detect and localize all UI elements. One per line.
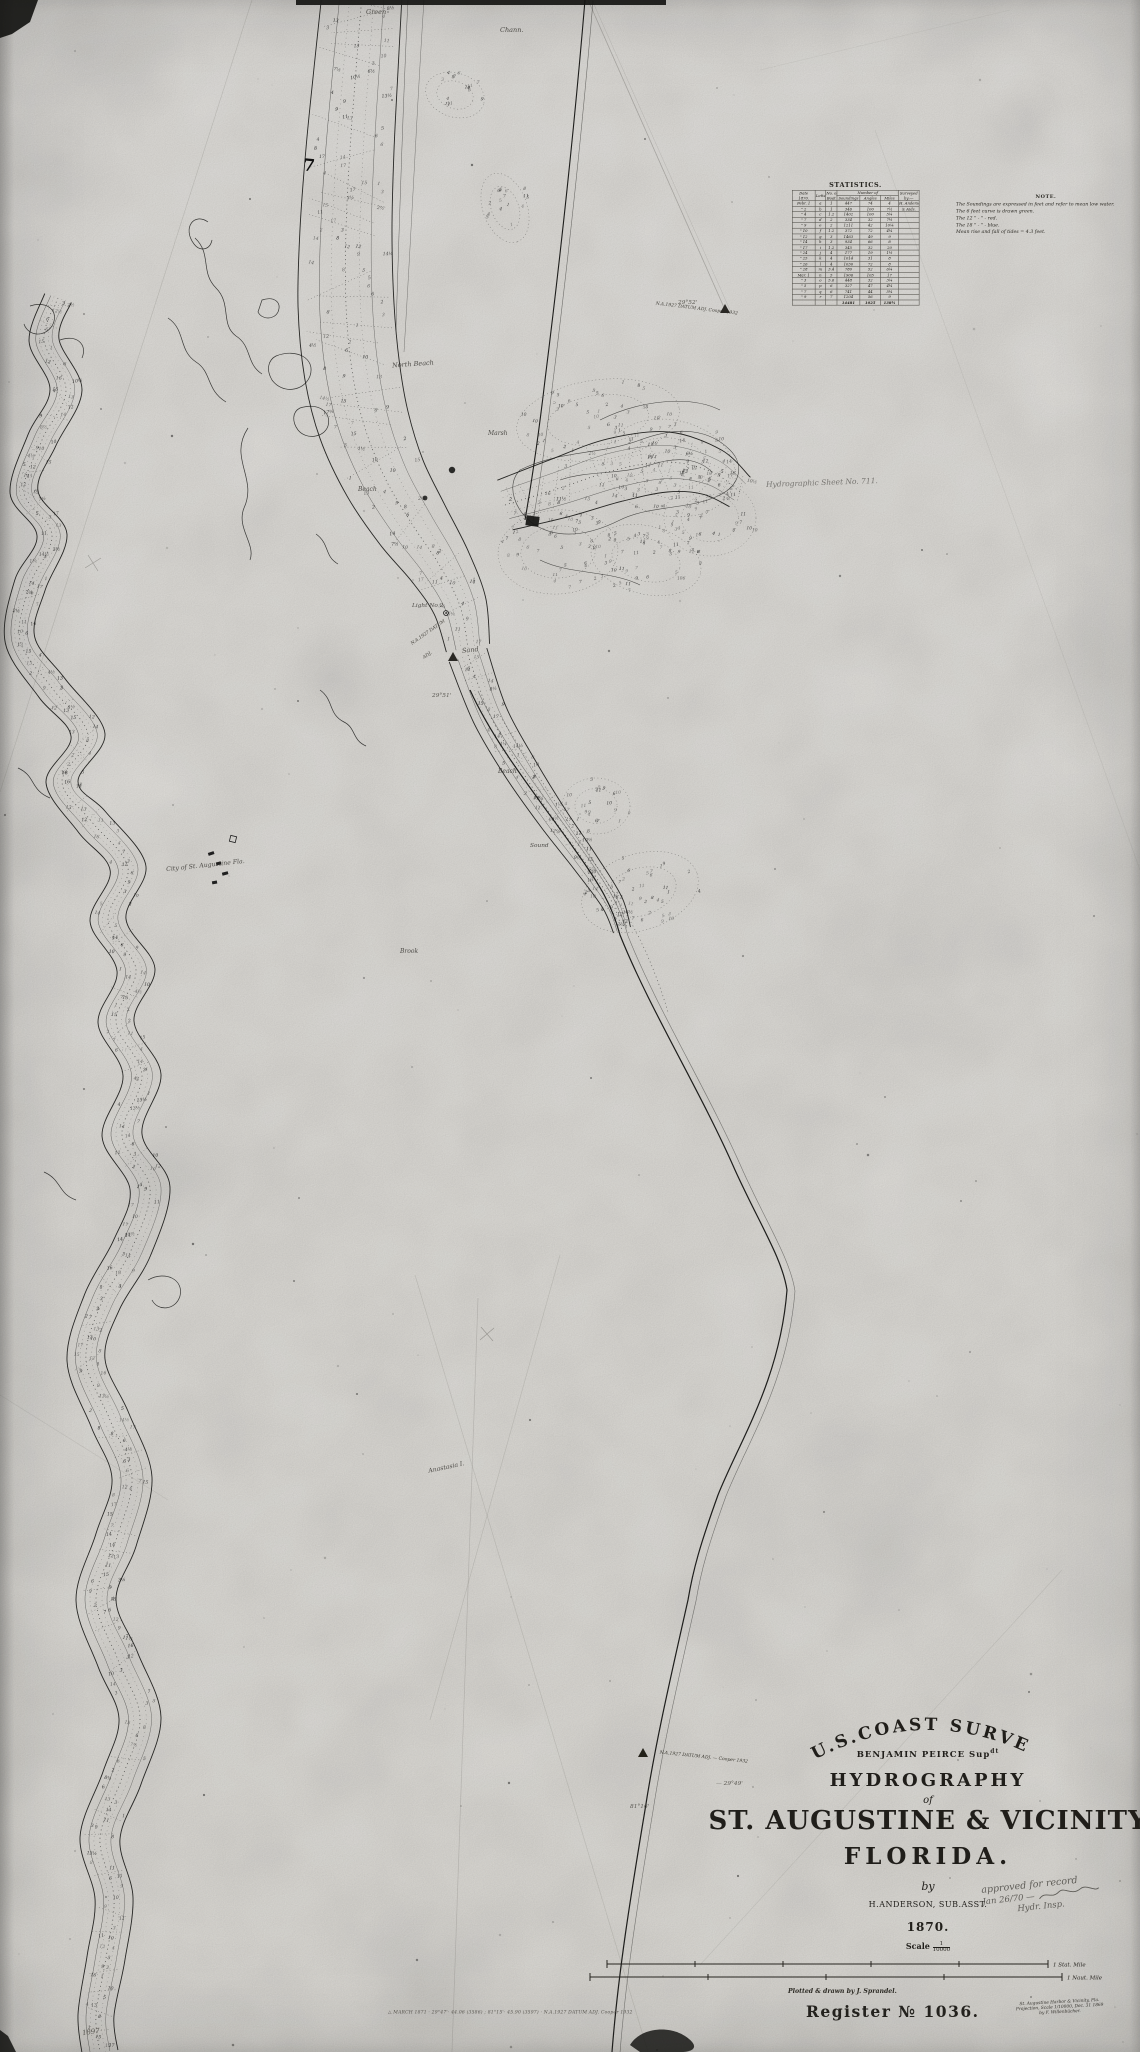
title-scale: Scale 110000: [660, 1941, 1140, 1953]
nautical-mile-label: 1 Naut. Mile: [1067, 1976, 1103, 1982]
datum-mid-label2: ADJ.: [422, 656, 442, 664]
col-letter: Letter: [815, 190, 825, 200]
title-superintendent: BENJAMIN PEIRCE Supdt: [660, 1748, 1140, 1760]
note-line: Mean rise and fall of tides = 4.3 feet.: [956, 229, 1136, 236]
title-of: of: [660, 1795, 1140, 1806]
map-label: Beach: [358, 486, 377, 493]
plotted-credit: Plotted & drawn by J. Sprandel.: [788, 1988, 897, 1995]
map-label: Light No 2: [412, 603, 443, 609]
ink-mark-7: 7: [302, 155, 316, 176]
title-staugustine: ST. AUGUSTINE & VICINITY: [660, 1806, 1140, 1836]
datum-title-triangle-icon: [638, 1748, 648, 1757]
title-year: 1870.: [660, 1920, 1140, 1934]
col-soundings: Soundings: [837, 195, 860, 200]
map-label: Chann.: [500, 26, 523, 34]
register-number: Register № 1036.: [806, 2002, 980, 2021]
map-label: Green: [366, 8, 386, 16]
pencil-bottom-note: △ MARCH 1871 · 29°47'· 44.06 (3586) ; 81…: [388, 2010, 728, 2022]
note-block: NOTE. The Soundings are expressed in fee…: [956, 194, 1136, 246]
datum-mid-lat: 29°51': [432, 682, 451, 701]
note-title: NOTE.: [956, 194, 1136, 200]
datum-top-label: N.A.1927 DATUM ADJ. Cooper 1932: [656, 301, 821, 309]
note-line: The 12 " - " - red.: [956, 215, 1136, 222]
statistics-table: Date 1870. Letter No. of Boat Number of …: [792, 190, 919, 313]
scale-bars: 1 Stat. Mile 1 Naut. Mile: [575, 1956, 1120, 1984]
map-label: Beach: [498, 768, 517, 775]
datum-top-triangle-icon: [720, 304, 730, 313]
note-line: The Soundings are expressed in feet and …: [956, 201, 1136, 208]
map-label: Marsh: [488, 430, 508, 437]
note-line: The 6 feet curve is drawn green.: [956, 208, 1136, 215]
title-hydrography: HYDROGRAPHY: [660, 1770, 1140, 1791]
chart-sheet: 2½312½661511261610½41513121498½109104½15…: [0, 0, 1140, 2052]
map-label: Brook: [400, 948, 418, 955]
col-date: Date 1870.: [792, 190, 815, 200]
datum-mid-label1: N.A.1927 DATUM: [410, 642, 491, 650]
datum-title-lon: 81°16': [630, 1793, 649, 1812]
col-surveyed: Surveyed by:—: [898, 190, 919, 200]
statistics-title: STATISTICS.: [792, 181, 919, 189]
map-label: Sound: [530, 843, 549, 849]
datum-mid-triangle-icon: [448, 652, 458, 661]
note-line: The 18 " - " - blue.: [956, 222, 1136, 229]
col-boat: No. of Boat: [826, 190, 837, 200]
title-florida: FLORIDA.: [660, 1843, 1140, 1870]
statute-mile-label: 1 Stat. Mile: [1053, 1963, 1086, 1969]
